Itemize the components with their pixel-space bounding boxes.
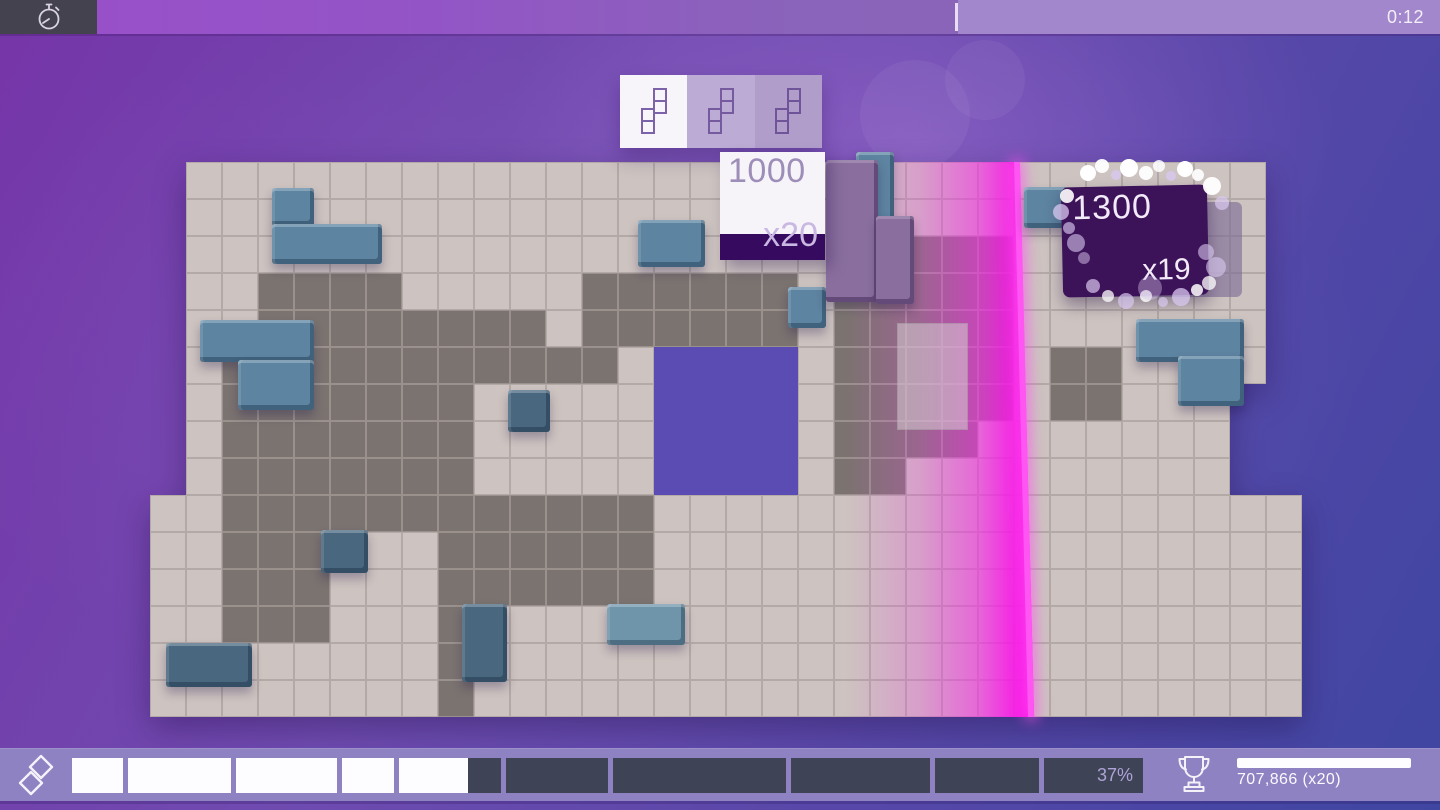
- board-cell-empty: [186, 236, 222, 273]
- score-popup-points: 1300: [1072, 188, 1152, 229]
- board-cell-empty: [1266, 569, 1302, 606]
- board-cell-empty: [762, 495, 798, 532]
- board-cell-empty: [546, 458, 582, 495]
- board-cell-empty: [1086, 643, 1122, 680]
- board-hole: [726, 421, 762, 458]
- progress-segment-divider: [501, 758, 506, 793]
- board-cell-empty: [1086, 532, 1122, 569]
- board-cell-empty: [1194, 495, 1230, 532]
- board-cell-empty: [762, 569, 798, 606]
- trophy-icon: [1174, 752, 1214, 798]
- board-cell-filled: [654, 273, 690, 310]
- board-cell-empty: [330, 569, 366, 606]
- score-popup-multiplier: x20: [763, 216, 818, 255]
- board-hole: [654, 421, 690, 458]
- board-hole: [654, 458, 690, 495]
- stopwatch-icon: [35, 2, 63, 32]
- board-cell-empty: [1266, 643, 1302, 680]
- board-cell-empty: [402, 162, 438, 199]
- board-cell-empty: [1194, 606, 1230, 643]
- board-cell-filled: [510, 347, 546, 384]
- score-value: 707,866 (x20): [1237, 771, 1341, 789]
- timeline-marker: [955, 3, 958, 31]
- board-cell-empty: [330, 680, 366, 717]
- progress-segment-divider: [930, 758, 935, 793]
- board-cell-empty: [1122, 606, 1158, 643]
- next-piece-slot-next: [687, 75, 754, 148]
- board-cell-filled: [510, 310, 546, 347]
- board-cell-empty: [582, 680, 618, 717]
- board-hole: [654, 384, 690, 421]
- blue-domino: [166, 643, 252, 687]
- board-cell-empty: [402, 606, 438, 643]
- board-cell-empty: [438, 199, 474, 236]
- blue-cube: [508, 390, 550, 432]
- board-cell-empty: [1194, 643, 1230, 680]
- board-cell-empty: [474, 162, 510, 199]
- board-cell-empty: [1194, 569, 1230, 606]
- board-cell-empty: [1158, 680, 1194, 717]
- board-cell-empty: [1122, 458, 1158, 495]
- board-cell-empty: [1266, 532, 1302, 569]
- board-cell-filled: [294, 458, 330, 495]
- board-cell-filled: [438, 384, 474, 421]
- board-cell-empty: [222, 236, 258, 273]
- board-cell-filled: [258, 606, 294, 643]
- board-cell-empty: [366, 680, 402, 717]
- board-cell-empty: [798, 421, 834, 458]
- board-cell-empty: [546, 199, 582, 236]
- board-cell-filled: [258, 273, 294, 310]
- blue-domino: [607, 604, 685, 645]
- board-cell-empty: [1194, 458, 1230, 495]
- board-cell-empty: [1050, 310, 1086, 347]
- board-cell-empty: [1158, 532, 1194, 569]
- board-cell-filled: [510, 495, 546, 532]
- board-cell-filled: [438, 421, 474, 458]
- board-cell-filled: [438, 347, 474, 384]
- board-cell-empty: [690, 532, 726, 569]
- board-cell-filled: [366, 310, 402, 347]
- board-cell-empty: [618, 458, 654, 495]
- board-cell-empty: [546, 273, 582, 310]
- board-cell-filled: [474, 495, 510, 532]
- blue-l-block: [200, 320, 314, 362]
- board-cell-empty: [654, 643, 690, 680]
- board-cell-empty: [186, 273, 222, 310]
- board-cell-empty: [150, 569, 186, 606]
- board-cell-filled: [294, 421, 330, 458]
- board-cell-empty: [618, 643, 654, 680]
- board-cell-empty: [1086, 458, 1122, 495]
- board-cell-empty: [1194, 680, 1230, 717]
- bokeh-glow: [945, 40, 1025, 120]
- board-cell-empty: [618, 162, 654, 199]
- timer-box: [0, 0, 97, 34]
- board-cell-empty: [1230, 162, 1266, 199]
- board-cell-filled: [582, 310, 618, 347]
- board-cell-empty: [726, 643, 762, 680]
- board-cell-filled: [690, 310, 726, 347]
- board-cell-empty: [1050, 532, 1086, 569]
- progress-segment-divider: [1039, 758, 1044, 793]
- board-cell-empty: [474, 273, 510, 310]
- board-cell-empty: [654, 532, 690, 569]
- board-cell-empty: [510, 162, 546, 199]
- progress-segment-divider: [394, 758, 399, 793]
- board-cell-filled: [402, 421, 438, 458]
- board-hole: [726, 458, 762, 495]
- board-cell-empty: [474, 199, 510, 236]
- score-popup-multiplier: x19: [1142, 253, 1191, 288]
- board-cell-empty: [1158, 495, 1194, 532]
- board-cell-empty: [762, 532, 798, 569]
- board-cell-empty: [1266, 606, 1302, 643]
- board-cell-empty: [1050, 458, 1086, 495]
- board-cell-filled: [366, 273, 402, 310]
- next-piece-slot-after: [755, 75, 822, 148]
- board-cell-empty: [1158, 569, 1194, 606]
- board-cell-empty: [546, 680, 582, 717]
- board-cell-empty: [546, 421, 582, 458]
- board-cell-empty: [1050, 680, 1086, 717]
- board-cell-empty: [546, 236, 582, 273]
- board-cell-empty: [1050, 421, 1086, 458]
- board-cell-empty: [186, 458, 222, 495]
- board-cell-filled: [618, 569, 654, 606]
- board-cell-empty: [474, 421, 510, 458]
- board-cell-empty: [366, 162, 402, 199]
- board-cell-empty: [798, 384, 834, 421]
- blue-l-block: [272, 188, 314, 226]
- board-cell-filled: [402, 384, 438, 421]
- board-cell-empty: [1230, 495, 1266, 532]
- score-popup: 1300 x19: [1061, 184, 1209, 297]
- board-cell-filled: [546, 569, 582, 606]
- board-cell-empty: [582, 421, 618, 458]
- board-cell-empty: [474, 680, 510, 717]
- board-cell-empty: [366, 606, 402, 643]
- board-cell-empty: [186, 162, 222, 199]
- board-cell-empty: [1086, 606, 1122, 643]
- board-cell-empty: [654, 569, 690, 606]
- board-cell-filled: [618, 532, 654, 569]
- board-cell-empty: [546, 384, 582, 421]
- s-piece-icon: [639, 87, 669, 137]
- board-cell-filled: [690, 273, 726, 310]
- board-cell-filled: [582, 495, 618, 532]
- blue-l-block: [272, 224, 382, 264]
- board-cell-empty: [150, 532, 186, 569]
- board-cell-empty: [582, 384, 618, 421]
- board-cell-empty: [582, 162, 618, 199]
- board-cell-empty: [762, 643, 798, 680]
- board-cell-empty: [1194, 532, 1230, 569]
- board-cell-empty: [1050, 643, 1086, 680]
- board-cell-empty: [510, 680, 546, 717]
- board-cell-filled: [222, 569, 258, 606]
- board-cell-filled: [402, 458, 438, 495]
- board-hole: [690, 384, 726, 421]
- progress-segment-divider: [123, 758, 128, 793]
- board-hole: [690, 421, 726, 458]
- board-cell-empty: [258, 680, 294, 717]
- bottom-hud: 37% 707,866 (x20): [0, 748, 1440, 801]
- board-cell-filled: [222, 458, 258, 495]
- board-cell-empty: [366, 532, 402, 569]
- board-cell-filled: [222, 421, 258, 458]
- board-cell-empty: [438, 273, 474, 310]
- board-cell-filled: [258, 421, 294, 458]
- board-cell-empty: [330, 643, 366, 680]
- board-cell-empty: [582, 458, 618, 495]
- blue-cube: [321, 530, 368, 573]
- board-cell-empty: [1086, 569, 1122, 606]
- board-cell-empty: [222, 273, 258, 310]
- board-cell-filled: [330, 347, 366, 384]
- board-cell-filled: [330, 458, 366, 495]
- board-cell-filled: [294, 495, 330, 532]
- board-cell-filled: [402, 495, 438, 532]
- board-cell-filled: [330, 310, 366, 347]
- progress-fill: [72, 758, 468, 793]
- board-cell-empty: [798, 495, 834, 532]
- board-cell-empty: [438, 236, 474, 273]
- board-cell-filled: [258, 458, 294, 495]
- board-cell-filled: [474, 569, 510, 606]
- board-cell-empty: [510, 643, 546, 680]
- board-cell-filled: [438, 532, 474, 569]
- board-cell-empty: [762, 680, 798, 717]
- board-cell-filled: [258, 495, 294, 532]
- board-cell-empty: [1230, 680, 1266, 717]
- board-cell-filled: [294, 569, 330, 606]
- board-cell-empty: [510, 606, 546, 643]
- board-cell-filled: [402, 347, 438, 384]
- board-cell-filled: [546, 532, 582, 569]
- board-cell-empty: [1122, 569, 1158, 606]
- board-cell-empty: [1122, 421, 1158, 458]
- board-cell-filled: [726, 273, 762, 310]
- board-cell-filled: [438, 569, 474, 606]
- board-cell-empty: [1122, 495, 1158, 532]
- board-cell-empty: [510, 273, 546, 310]
- board-cell-empty: [186, 384, 222, 421]
- board-cell-empty: [726, 569, 762, 606]
- board-cell-filled: [582, 532, 618, 569]
- progress-segment-divider: [231, 758, 236, 793]
- board-cell-empty: [186, 199, 222, 236]
- board-cell-empty: [510, 199, 546, 236]
- board-cell-filled: [726, 310, 762, 347]
- board-cell-filled: [474, 532, 510, 569]
- board-cell-filled: [258, 532, 294, 569]
- board-cell-filled: [366, 458, 402, 495]
- board-cell-filled: [582, 569, 618, 606]
- board-cell-empty: [798, 347, 834, 384]
- board-cell-empty: [1230, 606, 1266, 643]
- board-cell-filled: [330, 421, 366, 458]
- board-cell-empty: [1230, 643, 1266, 680]
- board-cell-empty: [1122, 532, 1158, 569]
- board-cell-empty: [294, 680, 330, 717]
- board-cell-empty: [474, 458, 510, 495]
- s-piece-icon: [706, 87, 736, 137]
- board-cell-filled: [222, 495, 258, 532]
- board-cell-empty: [1122, 643, 1158, 680]
- board-cell-empty: [654, 495, 690, 532]
- board-cell-filled: [294, 273, 330, 310]
- board-cell-empty: [186, 606, 222, 643]
- board-cell-filled: [330, 495, 366, 532]
- board-cell-empty: [618, 680, 654, 717]
- top-bar-right-section: [958, 0, 1440, 34]
- board-cell-empty: [582, 199, 618, 236]
- board-hole: [762, 458, 798, 495]
- board-cell-empty: [690, 643, 726, 680]
- board-cell-filled: [438, 495, 474, 532]
- board-hole: [762, 347, 798, 384]
- board-cell-empty: [1230, 569, 1266, 606]
- board-cell-filled: [474, 347, 510, 384]
- board-cell-empty: [798, 532, 834, 569]
- board-cell-empty: [618, 347, 654, 384]
- board-cell-filled: [402, 310, 438, 347]
- board-cell-empty: [222, 199, 258, 236]
- board-cell-empty: [546, 606, 582, 643]
- blue-l-block: [1178, 356, 1244, 406]
- board-cell-empty: [402, 236, 438, 273]
- board-cell-empty: [798, 680, 834, 717]
- board-cell-filled: [546, 347, 582, 384]
- board-cell-empty: [510, 236, 546, 273]
- board-cell-empty: [690, 606, 726, 643]
- board-cell-empty: [1158, 643, 1194, 680]
- board-cell-empty: [1086, 421, 1122, 458]
- board-cell-empty: [1158, 458, 1194, 495]
- board-cell-empty: [690, 680, 726, 717]
- level-progress-bar: 37%: [72, 758, 1143, 793]
- board-cell-filled: [222, 532, 258, 569]
- board-cell-empty: [1086, 680, 1122, 717]
- board-cell-empty: [726, 606, 762, 643]
- board-cell-filled: [438, 458, 474, 495]
- board-cell-empty: [1266, 680, 1302, 717]
- board-cell-empty: [546, 310, 582, 347]
- board-cell-empty: [618, 384, 654, 421]
- board-cell-empty: [582, 643, 618, 680]
- progress-segment-divider: [608, 758, 613, 793]
- board-cell-empty: [1050, 495, 1086, 532]
- board-cell-empty: [438, 162, 474, 199]
- board-cell-filled: [366, 347, 402, 384]
- board-cell-filled: [438, 310, 474, 347]
- board-cell-filled: [474, 310, 510, 347]
- board-cell-empty: [654, 680, 690, 717]
- board-cell-empty: [654, 162, 690, 199]
- score-popup: 1000 x20: [720, 152, 825, 260]
- board-cell-empty: [726, 680, 762, 717]
- board-hole: [762, 421, 798, 458]
- board-hole: [690, 458, 726, 495]
- board-cell-empty: [1230, 532, 1266, 569]
- top-bar: 0:12: [0, 0, 1440, 34]
- board-cell-filled: [582, 273, 618, 310]
- blue-l-block: [238, 360, 314, 410]
- board-cell-empty: [798, 458, 834, 495]
- board-cell-empty: [402, 199, 438, 236]
- board-cell-empty: [1050, 606, 1086, 643]
- board-cell-filled: [330, 273, 366, 310]
- board-cell-filled: [618, 495, 654, 532]
- board-cell-filled: [1086, 347, 1122, 384]
- board-cell-filled: [1050, 384, 1086, 421]
- board-cell-empty: [1122, 384, 1158, 421]
- board-cell-empty: [510, 458, 546, 495]
- board-cell-empty: [1158, 606, 1194, 643]
- board-cell-empty: [330, 162, 366, 199]
- double-diamond-icon: [14, 753, 58, 797]
- board-cell-empty: [222, 162, 258, 199]
- board-cell-empty: [402, 532, 438, 569]
- progress-percent: 37%: [1097, 758, 1133, 793]
- board-cell-empty: [1086, 310, 1122, 347]
- board-hole: [690, 347, 726, 384]
- board-cell-empty: [798, 569, 834, 606]
- board-cell-empty: [402, 643, 438, 680]
- board-cell-filled: [618, 310, 654, 347]
- next-piece-slot-current: [620, 75, 687, 148]
- board-cell-filled: [1050, 347, 1086, 384]
- board-hole: [654, 347, 690, 384]
- board-cell-empty: [474, 236, 510, 273]
- board-cell-empty: [258, 643, 294, 680]
- blue-domino: [462, 604, 507, 682]
- board-cell-empty: [402, 569, 438, 606]
- board-hole: [762, 384, 798, 421]
- board-cell-empty: [402, 680, 438, 717]
- purple-piece: [826, 160, 878, 302]
- board-cell-filled: [510, 532, 546, 569]
- timer-value: 0:12: [1387, 0, 1424, 34]
- board-cell-filled: [438, 680, 474, 717]
- board-cell-filled: [258, 569, 294, 606]
- board-cell-empty: [726, 495, 762, 532]
- progress-segment-divider: [337, 758, 342, 793]
- board-cell-empty: [798, 606, 834, 643]
- next-piece-panel: [620, 75, 822, 148]
- board-cell-empty: [546, 643, 582, 680]
- board-cell-empty: [294, 643, 330, 680]
- board-cell-filled: [366, 421, 402, 458]
- ghost-piece: [897, 323, 968, 430]
- board-cell-filled: [582, 347, 618, 384]
- board-cell-filled: [1086, 384, 1122, 421]
- board-cell-filled: [294, 606, 330, 643]
- board-cell-empty: [546, 162, 582, 199]
- s-piece-icon: [773, 87, 803, 137]
- blue-domino: [638, 220, 705, 267]
- board-cell-filled: [618, 273, 654, 310]
- board-cell-empty: [330, 606, 366, 643]
- blue-cube: [788, 287, 826, 328]
- board-cell-empty: [582, 236, 618, 273]
- board-cell-empty: [1158, 421, 1194, 458]
- board-cell-empty: [186, 532, 222, 569]
- board-cell-filled: [366, 495, 402, 532]
- board-hole: [726, 347, 762, 384]
- board-cell-empty: [690, 495, 726, 532]
